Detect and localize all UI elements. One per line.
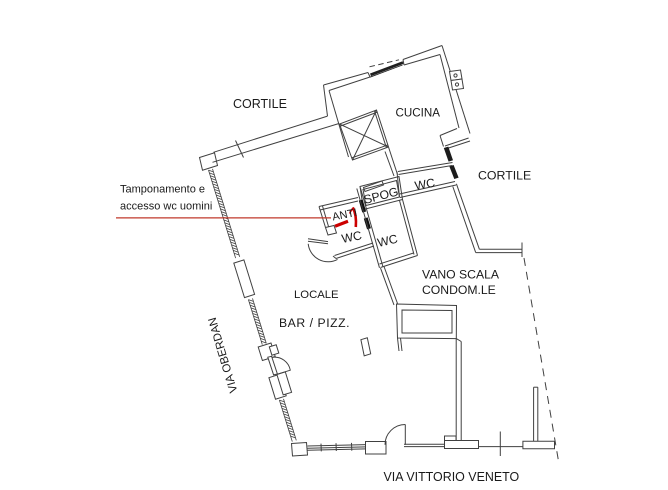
svg-text:Tamponamento e: Tamponamento e: [120, 184, 205, 196]
svg-text:LOCALE: LOCALE: [294, 289, 339, 301]
svg-text:VANO SCALA: VANO SCALA: [422, 268, 500, 282]
svg-text:CORTILE: CORTILE: [478, 168, 531, 182]
svg-text:ANTI: ANTI: [331, 207, 358, 224]
svg-text:accesso wc uomini: accesso wc uomini: [120, 201, 212, 213]
svg-text:CORTILE: CORTILE: [233, 97, 287, 111]
svg-text:CUCINA: CUCINA: [396, 106, 441, 119]
svg-text:VIA VITTORIO VENETO: VIA VITTORIO VENETO: [384, 470, 520, 484]
svg-text:WC: WC: [376, 232, 399, 250]
svg-text:BAR / PIZZ.: BAR / PIZZ.: [279, 316, 350, 330]
svg-text:VIA OBERDAN: VIA OBERDAN: [207, 316, 241, 394]
svg-text:WC: WC: [340, 228, 363, 246]
svg-text:CONDOM.LE: CONDOM.LE: [422, 283, 496, 297]
